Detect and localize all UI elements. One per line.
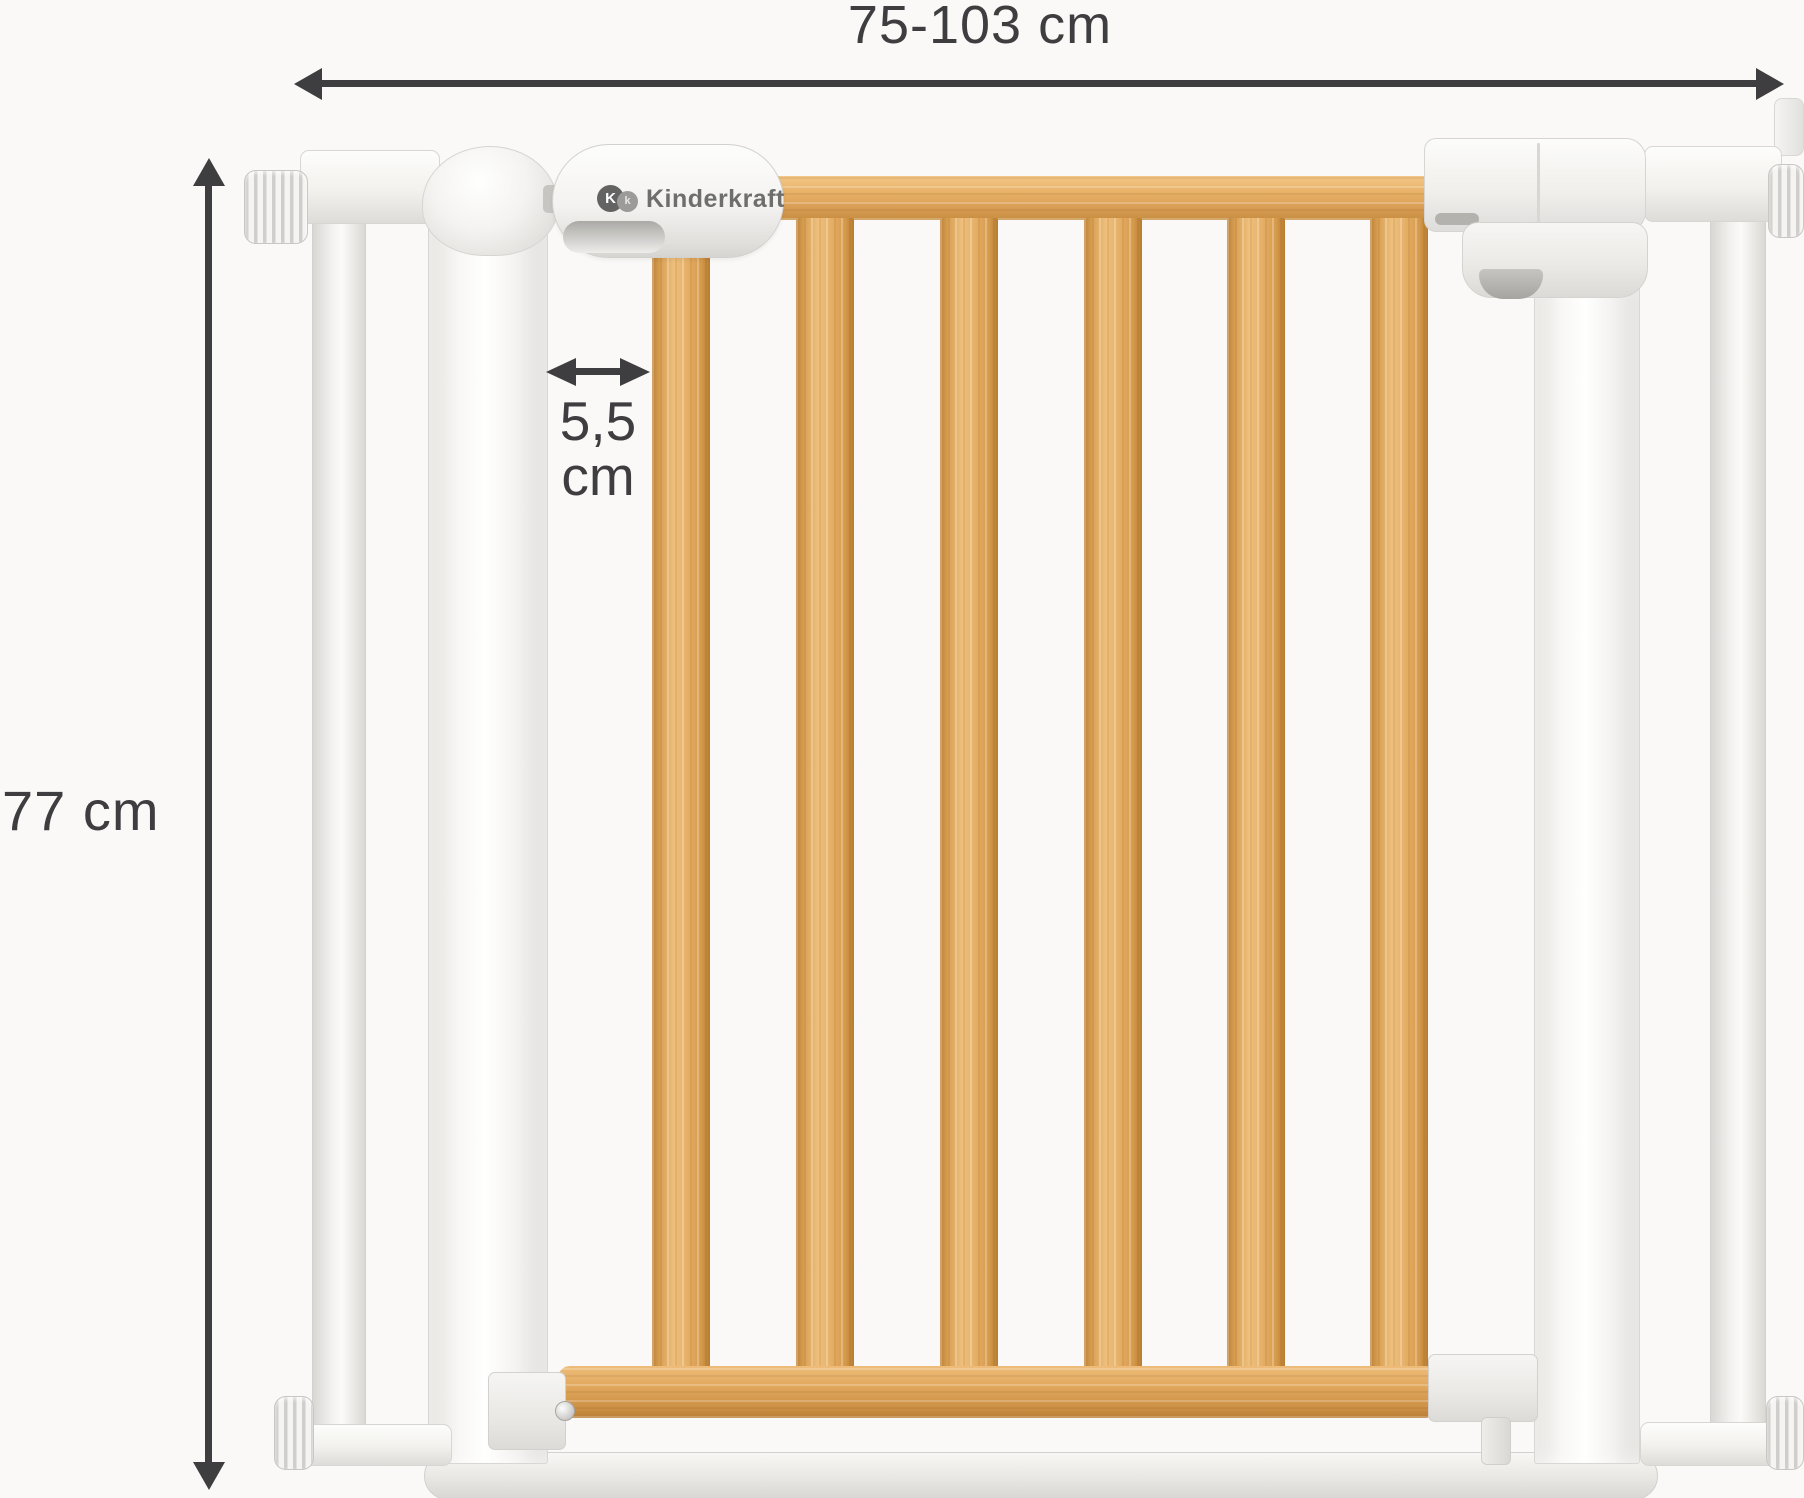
gate-slat <box>796 218 854 1370</box>
latch-hook <box>1462 222 1648 298</box>
width-dimension-arrow <box>322 80 1756 87</box>
latch-receiver-top <box>1424 138 1646 232</box>
right-tension-knob-top <box>1768 164 1804 238</box>
right-frame-post <box>1534 284 1640 1464</box>
brand-logo-text: Kinderkraft <box>646 185 785 214</box>
right-wall-bracket-bottom <box>1640 1422 1784 1466</box>
latch-seam <box>1537 143 1540 227</box>
gate-slat <box>1084 218 1142 1370</box>
left-pressure-post <box>312 218 366 1434</box>
left-tension-knob-top <box>244 170 308 244</box>
latch-bottom-peg <box>1481 1417 1511 1465</box>
frame-bottom-bar <box>424 1452 1658 1498</box>
left-frame-post <box>428 210 548 1464</box>
brand-logo: K k Kinderkraft <box>597 185 785 215</box>
lock-handle: K k Kinderkraft <box>552 144 784 258</box>
bottom-hinge-bracket <box>488 1372 566 1450</box>
latch-receiver-bottom <box>1428 1354 1538 1422</box>
brand-logo-icon-secondary: k <box>617 191 638 212</box>
gate-bottom-rail <box>558 1366 1430 1418</box>
gate-slat <box>940 218 998 1370</box>
right-wall-bracket-top <box>1644 146 1782 222</box>
right-pressure-post <box>1710 218 1766 1434</box>
slat-gap-label: 5,5 cm <box>540 394 656 504</box>
height-dimension-label: 77 cm <box>2 780 192 842</box>
latch-hook-shadow <box>1479 269 1543 299</box>
handle-grip-recess <box>563 221 665 253</box>
gate-slat <box>1227 218 1285 1370</box>
left-tension-knob-bottom <box>274 1396 314 1470</box>
height-dimension-arrow <box>205 186 212 1462</box>
slat-gap-arrow <box>576 368 620 375</box>
product-dimension-diagram: 75-103 cm 77 cm 5,5 cm <box>0 0 1804 1498</box>
width-dimension-label: 75-103 cm <box>760 0 1200 56</box>
left-wall-bracket-bottom <box>298 1424 452 1466</box>
hinge-screw <box>555 1401 575 1421</box>
gate-slat <box>652 218 710 1370</box>
slat-gap-value: 5,5 <box>540 394 656 449</box>
right-tension-knob-bottom <box>1766 1396 1804 1470</box>
left-wall-bracket-top <box>300 150 440 224</box>
hinge-cap <box>422 146 558 256</box>
gate-slat <box>1370 218 1428 1370</box>
slat-gap-unit: cm <box>540 449 656 504</box>
